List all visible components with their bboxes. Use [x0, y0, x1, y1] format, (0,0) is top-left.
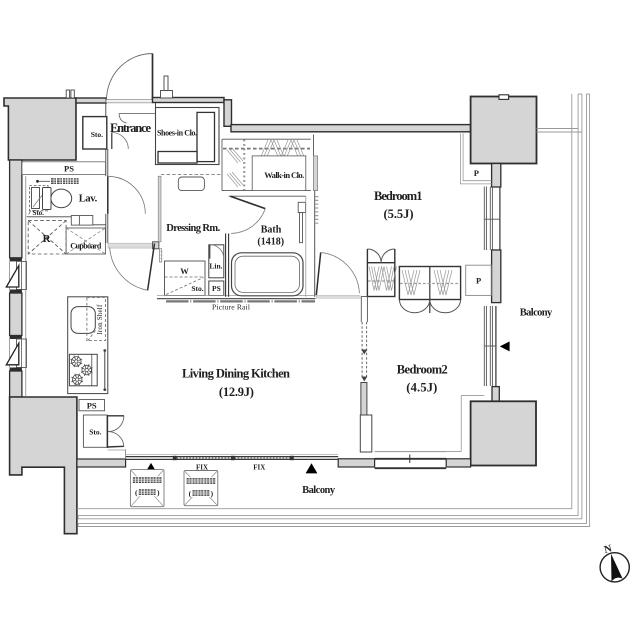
svg-text:P: P: [474, 168, 479, 178]
svg-text:FIX: FIX: [253, 464, 265, 472]
svg-text:Living Dining Kitchen: Living Dining Kitchen: [182, 366, 290, 380]
svg-text:Bath: Bath: [261, 224, 282, 235]
svg-text:P: P: [476, 275, 481, 285]
svg-text:Bedroom1: Bedroom1: [374, 189, 423, 203]
svg-text:Balcony: Balcony: [520, 307, 553, 318]
svg-text:Cupboard: Cupboard: [70, 242, 102, 251]
svg-text:R: R: [43, 233, 52, 245]
svg-text:W: W: [180, 266, 189, 276]
svg-text:Sto.: Sto.: [89, 428, 101, 437]
svg-text:(5.5J): (5.5J): [384, 207, 414, 221]
svg-text:(4.5J): (4.5J): [406, 380, 437, 394]
svg-text:Picture Rail: Picture Rail: [212, 303, 250, 312]
svg-text:PS: PS: [87, 400, 97, 410]
svg-text:Bedroom2: Bedroom2: [397, 362, 448, 376]
svg-text:Sto.: Sto.: [32, 209, 44, 217]
svg-text:PS: PS: [212, 284, 221, 293]
svg-text:Sto.: Sto.: [91, 130, 103, 139]
svg-text:Walk-in Clo.: Walk-in Clo.: [264, 170, 304, 180]
svg-text:(1418): (1418): [257, 236, 284, 247]
svg-text:Lin.: Lin.: [209, 261, 222, 270]
svg-text:Sto.: Sto.: [191, 284, 203, 293]
svg-text:Lav.: Lav.: [79, 194, 98, 205]
svg-text:PS: PS: [64, 163, 74, 173]
svg-text:Shoes-in Clo.: Shoes-in Clo.: [157, 129, 197, 138]
svg-text:Dressing Rm.: Dressing Rm.: [166, 223, 220, 234]
svg-text:(12.9J): (12.9J): [219, 385, 254, 399]
svg-text:Balcony: Balcony: [302, 485, 336, 496]
svg-text:Iron Shelf: Iron Shelf: [96, 304, 104, 335]
